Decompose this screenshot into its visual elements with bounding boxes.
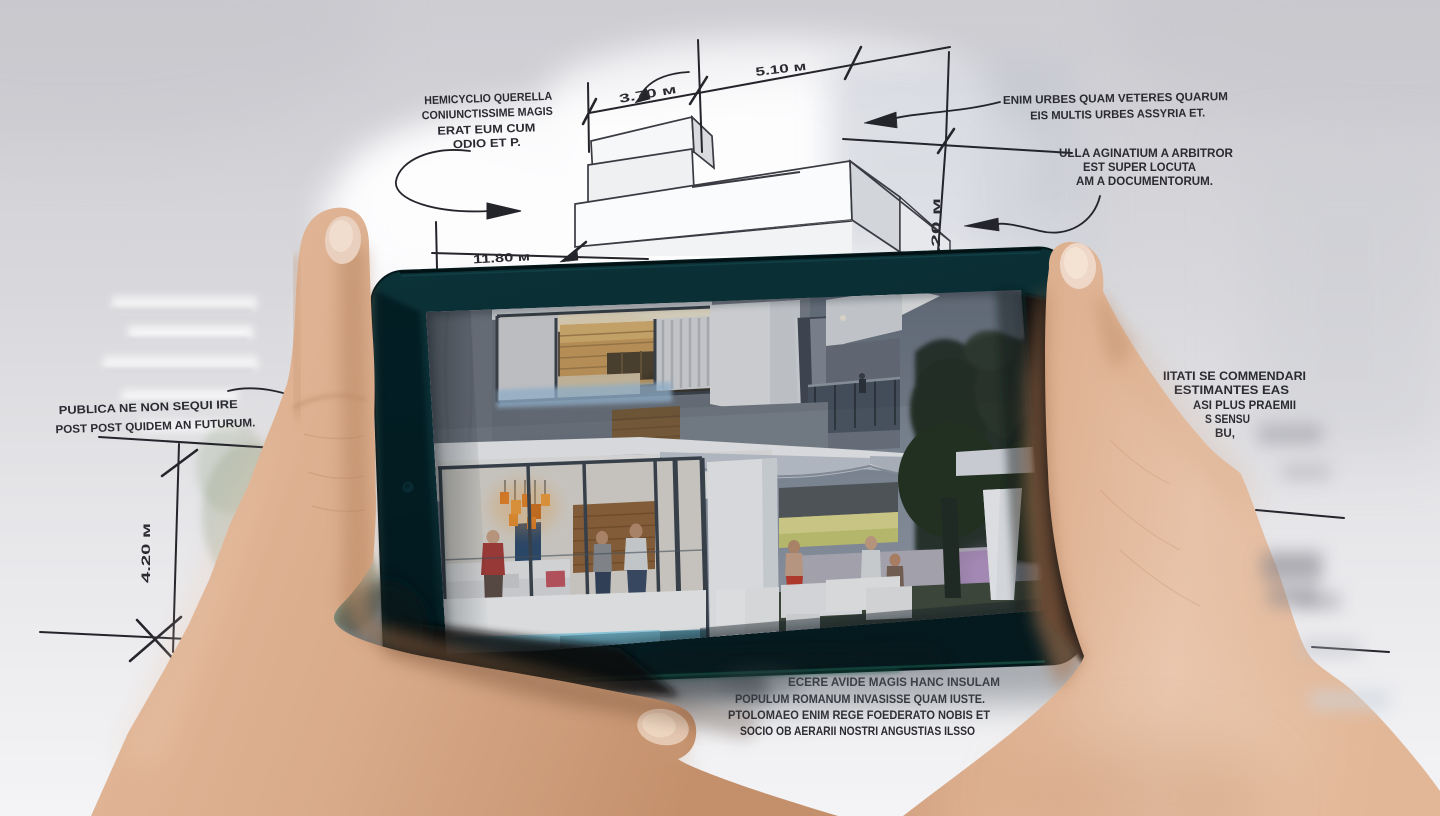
svg-text:4.20 м: 4.20 м (139, 523, 153, 583)
svg-text:SOCIO OB AERARII NOSTRI ANGUST: SOCIO OB AERARII NOSTRI ANGUSTIAS ILSSO (740, 726, 975, 738)
svg-text:IITATI SE COMMENDARI: IITATI SE COMMENDARI (1163, 371, 1306, 383)
svg-text:AM A DOCUMENTORUM.: AM A DOCUMENTORUM. (1076, 176, 1213, 188)
svg-text:11.80 м: 11.80 м (473, 249, 531, 266)
svg-text:ULLA AGINATIUM A ARBITROR: ULLA AGINATIUM A ARBITROR (1059, 148, 1234, 160)
svg-text:PTOLOMAEO ENIM REGE FOEDERATO: PTOLOMAEO ENIM REGE FOEDERATO NOBIS ET (728, 710, 990, 722)
svg-text:EST SUPER LOCUTA: EST SUPER LOCUTA (1083, 162, 1196, 174)
svg-text:BU,: BU, (1215, 428, 1235, 440)
svg-text:ODIO ET P.: ODIO ET P. (453, 137, 521, 151)
svg-text:ASI PLUS PRAEMII: ASI PLUS PRAEMII (1193, 400, 1296, 412)
svg-text:S SENSU: S SENSU (1205, 414, 1250, 426)
svg-text:ESTIMANTES EAS: ESTIMANTES EAS (1174, 385, 1289, 397)
